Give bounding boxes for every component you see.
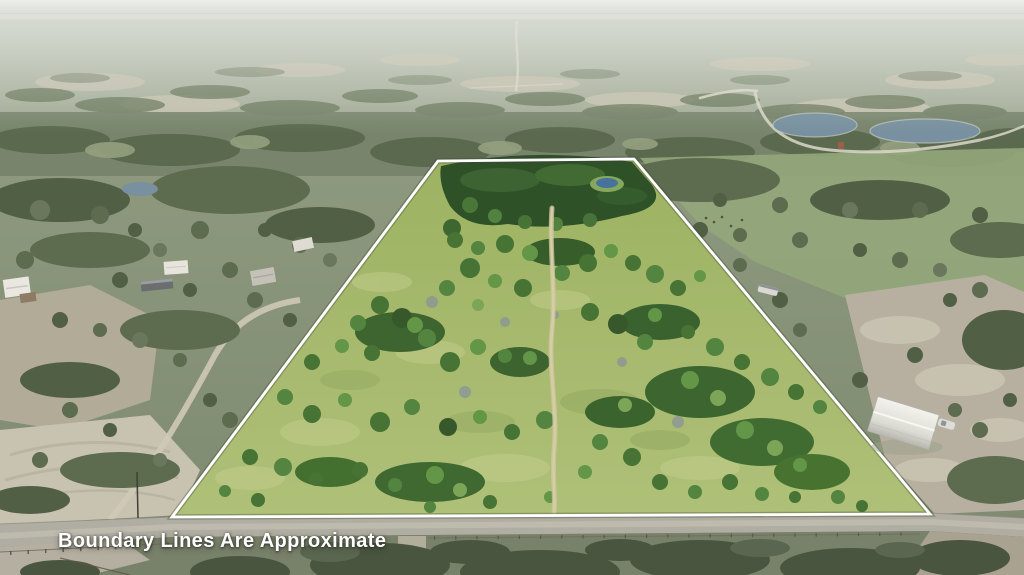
aerial-scene [0, 0, 1024, 575]
utility-pole [137, 472, 138, 518]
pond-left [122, 182, 158, 196]
boundary-disclaimer-text: Boundary Lines Are Approximate [58, 530, 386, 553]
haze-overlay [0, 14, 1024, 134]
barn-left [164, 260, 189, 275]
aerial-listing-photo: Boundary Lines Are Approximate [0, 0, 1024, 575]
pond-on-property [596, 178, 618, 188]
pump-structure [838, 142, 844, 149]
